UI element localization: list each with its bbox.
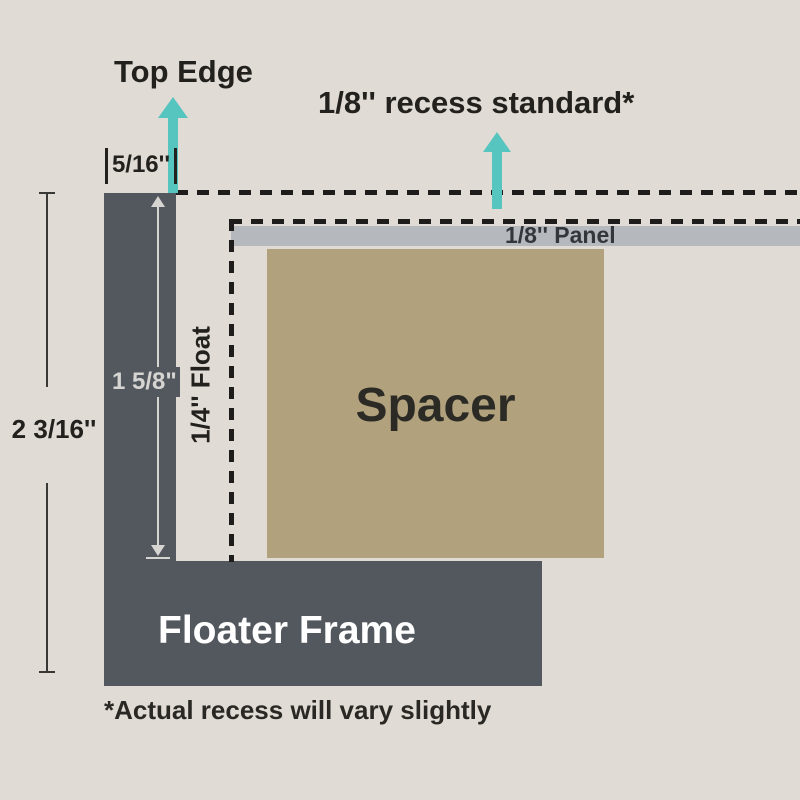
panel-label: 1/8'' Panel <box>505 224 616 247</box>
top-edge-arrow-icon <box>158 97 188 118</box>
inner-depth-arrow-down-icon <box>151 545 165 556</box>
floater-frame-label: Floater Frame <box>158 609 416 653</box>
recess-width-right-tick <box>174 148 177 184</box>
recess-arrow-shaft <box>492 150 502 209</box>
recess-arrow-icon <box>483 132 511 152</box>
recess-standard-label: 1/8'' recess standard* <box>318 85 634 121</box>
floater-frame-diagram: 1 5/8" 2 3/16'' 5/16'' 1/4'' Float Top E… <box>0 0 800 800</box>
footnote-label: *Actual recess will vary slightly <box>104 695 491 726</box>
float-dashed-line <box>229 219 234 562</box>
spacer-label: Spacer <box>267 378 604 433</box>
total-depth-bottom-tick <box>39 671 55 673</box>
total-depth-line-upper <box>46 194 48 387</box>
top-edge-dashed-line <box>176 190 800 195</box>
top-edge-label: Top Edge <box>114 54 253 90</box>
float-gap-value: 1/4'' Float <box>186 326 217 444</box>
total-depth-line-lower <box>46 483 48 672</box>
inner-depth-value: 1 5/8" <box>109 367 180 397</box>
inner-depth-end-tick <box>146 557 170 559</box>
total-depth-value: 2 3/16'' <box>0 414 108 445</box>
recess-width-value: 5/16'' <box>106 151 176 179</box>
